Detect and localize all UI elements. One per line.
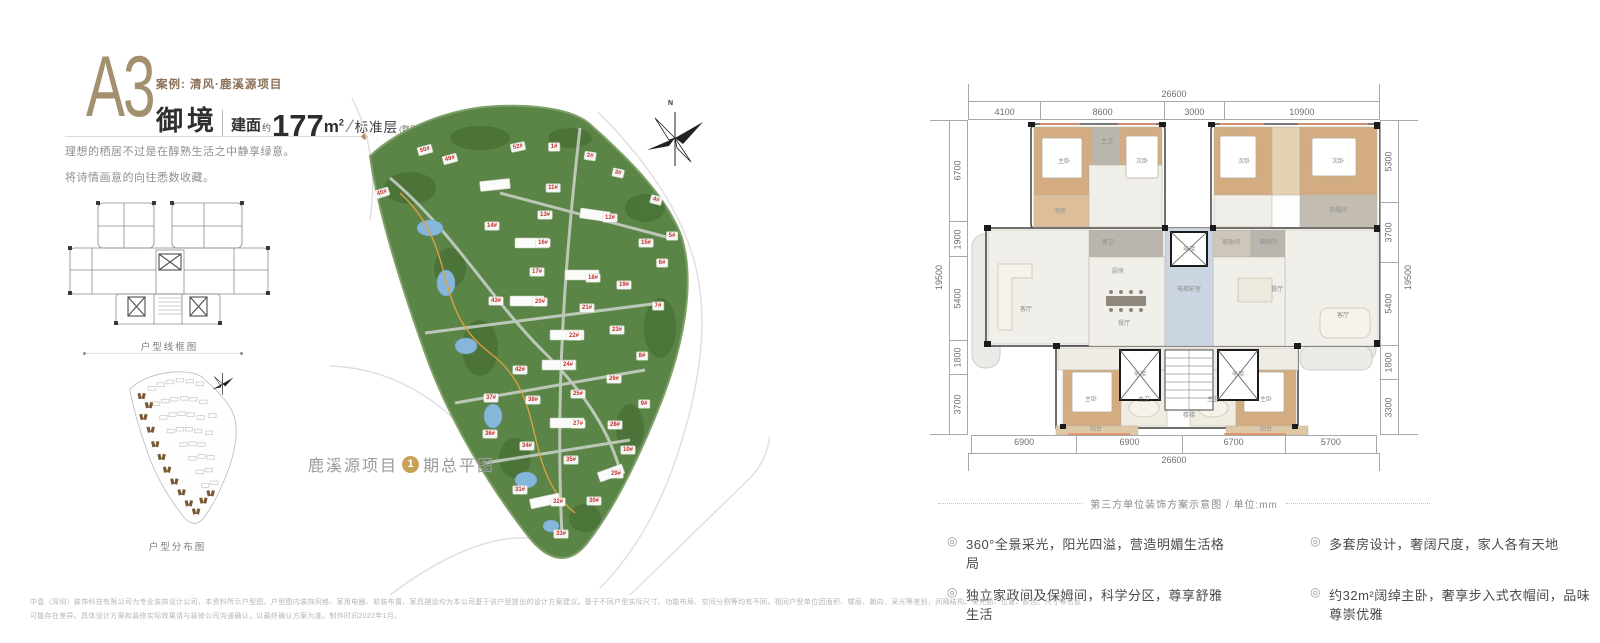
area-value: 177 xyxy=(272,113,324,138)
room-label: 客卫 xyxy=(1102,240,1114,246)
intro-text: 理想的栖居不过是在醇熟生活之中静享绿意。 将诗情画意的向往悉数收藏。 xyxy=(65,143,295,195)
building-label: 2# xyxy=(584,151,596,160)
room-label: 主卫 xyxy=(1101,139,1113,145)
unit-name: 御境 xyxy=(156,99,218,138)
building-label: 17# xyxy=(530,268,544,276)
building-label: 30# xyxy=(587,497,601,505)
area-about: 约 xyxy=(262,121,271,134)
building-labels-overlay: 52# 50# 49# 45# 1# 2# 3# 4# 5# 6# 7# xyxy=(330,98,770,595)
dim-left-total: 19500 xyxy=(930,120,950,435)
room-label: 楼梯 xyxy=(1183,413,1195,419)
building-label: 52# xyxy=(510,142,525,153)
dim-top-segments: 41008600300010900 xyxy=(968,102,1380,120)
room-label: 阳台 xyxy=(1260,427,1272,433)
brochure-page: A3 案例: 清风·鹿溪源项目 御境 建面 约 177 m2 / 标准层 (整层… xyxy=(0,0,1600,643)
unit-code: A3 xyxy=(86,50,131,126)
wireframe-diagram: 户型线框图 xyxy=(62,198,277,353)
room-label: 电梯 xyxy=(1232,372,1244,378)
building-label: 22# xyxy=(567,332,581,340)
dim-right-segments: 53003700540018003300 xyxy=(1380,120,1398,435)
building-label: 4# xyxy=(650,195,662,205)
intro-line-2: 将诗情画意的向往悉数收藏。 xyxy=(65,169,295,185)
floor-plan-drawing: 主卧 主卫 次卧 书房 客卫 厨房 家政间 保姆间 次卧 xyxy=(968,120,1380,435)
room-label: 家政间 xyxy=(1222,240,1240,246)
room-label: 厨房 xyxy=(1112,269,1124,275)
caption-leader-right xyxy=(1286,503,1430,504)
feature-bullet-icon: ◎ xyxy=(1310,534,1321,548)
room-label: 餐厅 xyxy=(1118,321,1130,327)
building-label: 9# xyxy=(639,400,650,408)
room-label: 客厅 xyxy=(1337,313,1349,319)
building-label: 25# xyxy=(571,390,585,398)
floor-plan-caption: 第三方单位装饰方案示意图 / 单位:mm xyxy=(938,496,1430,511)
building-label: 33# xyxy=(554,530,568,538)
building-label: 20# xyxy=(533,298,547,306)
building-label: 3# xyxy=(612,168,624,178)
building-label: 38# xyxy=(526,396,540,404)
room-labels-overlay: 主卧 主卫 次卧 书房 客卫 厨房 家政间 保姆间 次卧 xyxy=(968,120,1380,435)
caption-text: 第三方单位装饰方案示意图 / 单位:mm xyxy=(1082,496,1286,511)
phase-badge: 1 xyxy=(402,456,419,473)
caption-leader-left xyxy=(938,503,1082,504)
building-label: 15# xyxy=(639,239,653,247)
room-label: 客厅 xyxy=(1020,307,1032,313)
room-label: 电梯前室 xyxy=(1177,287,1201,293)
building-label: 18# xyxy=(586,274,600,282)
feature-text: 多套房设计，奢阔尺度，家人各有天地 xyxy=(1329,534,1559,553)
building-label: 6# xyxy=(657,259,668,267)
building-label: 19# xyxy=(617,281,631,289)
room-label: 阳台 xyxy=(1090,427,1102,433)
building-label: 27# xyxy=(571,420,585,428)
site-plan-caption-prefix: 鹿溪源项目 xyxy=(308,452,398,476)
building-label: 34# xyxy=(520,442,534,450)
dim-top-total: 26600 xyxy=(968,84,1380,102)
building-label: 35# xyxy=(564,456,578,464)
wireframe-caption: 户型线框图 xyxy=(62,339,277,353)
building-label: 37# xyxy=(484,394,498,402)
distribution-diagram: 户型分布图 xyxy=(90,362,265,553)
feature-text: 360°全景采光，阳光四溢，营造明媚生活格局 xyxy=(966,534,1234,572)
room-label: 衣帽间 xyxy=(1329,208,1347,214)
room-label: 次卧 xyxy=(1332,159,1344,165)
room-label: 餐厅 xyxy=(1271,287,1283,293)
room-label: 电梯 xyxy=(1134,372,1146,378)
dim-right-total: 19500 xyxy=(1398,120,1418,435)
building-label: 11# xyxy=(546,184,560,192)
header-rule xyxy=(65,136,365,137)
site-plan-caption-suffix: 期总平图 xyxy=(423,452,495,476)
building-label: 42# xyxy=(513,366,527,374)
distribution-map-svg xyxy=(90,362,265,530)
building-label: 49# xyxy=(442,153,458,164)
north-label: N xyxy=(668,100,673,107)
site-plan-caption: 鹿溪源项目 1 期总平图 xyxy=(308,452,495,476)
room-label: 主卧 xyxy=(1260,397,1272,403)
dim-left-segments: 67001900540018003700 xyxy=(950,120,968,435)
room-label: 主卫 xyxy=(1207,397,1219,403)
room-label: 书房 xyxy=(1054,209,1066,215)
building-label: 36# xyxy=(483,430,497,438)
disclaimer-line-1: 中壹（深圳）装饰科技有限公司为专业装饰设计公司，本资料所示户型图、户型图内装饰风… xyxy=(30,598,1575,607)
building-label: 16# xyxy=(536,239,550,247)
building-label: 8# xyxy=(637,352,648,360)
room-label: 主卫 xyxy=(1138,397,1150,403)
disclaimer: 中壹（深圳）装饰科技有限公司为专业装饰设计公司，本资料所示户型图、户型图内装饰风… xyxy=(30,598,1575,626)
building-label: 12# xyxy=(603,214,617,222)
building-label: 7# xyxy=(653,302,664,310)
building-label: 50# xyxy=(417,144,433,155)
building-label: 28# xyxy=(608,421,622,429)
floor-plan-block: 26600 41008600300010900 19500 6700190054… xyxy=(930,84,1418,471)
feature-item: ◎ 多套房设计，奢阔尺度，家人各有天地 xyxy=(1310,534,1600,572)
intro-line-1: 理想的栖居不过是在醇熟生活之中静享绿意。 xyxy=(65,143,295,159)
building-label: 43# xyxy=(489,297,503,305)
unit-code-wrap: A3 xyxy=(86,50,152,138)
feature-bullet-icon: ◎ xyxy=(947,534,958,548)
disclaimer-line-2: 可能存在差异。具体设计方案和装修实际效果请与装修公司沟通确认，以最终确认方案为准… xyxy=(30,612,1575,621)
building-label: 45# xyxy=(374,187,390,199)
building-label: 10# xyxy=(621,446,635,454)
separator-dotline xyxy=(84,353,242,354)
building-label: 13# xyxy=(538,211,552,219)
building-label: 21# xyxy=(580,304,594,312)
site-master-plan: 52# 50# 49# 45# 1# 2# 3# 4# 5# 6# 7# xyxy=(330,98,770,595)
room-label: 电梯 xyxy=(1183,247,1195,253)
building-label: 29# xyxy=(609,470,623,478)
building-label: 26# xyxy=(607,375,621,383)
title-divider xyxy=(222,110,223,137)
building-label: 1# xyxy=(549,143,560,151)
dim-bottom-total: 26600 xyxy=(968,453,1380,471)
building-label: 5# xyxy=(667,232,678,240)
room-label: 次卧 xyxy=(1238,159,1250,165)
room-label: 保姆间 xyxy=(1259,240,1277,246)
dim-bottom-segments: 6900690067005700 xyxy=(968,435,1380,453)
building-label: 24# xyxy=(561,361,575,369)
wireframe-floorplan-svg xyxy=(62,198,277,330)
room-label: 主卧 xyxy=(1058,159,1070,165)
building-label: 23# xyxy=(610,326,624,334)
case-label: 案例: 清风·鹿溪源项目 xyxy=(156,76,420,92)
building-label: 14# xyxy=(485,222,499,230)
room-label: 主卧 xyxy=(1085,397,1097,403)
building-label: 32# xyxy=(551,498,565,506)
room-label: 次卧 xyxy=(1136,159,1148,165)
building-label: 31# xyxy=(513,486,527,494)
distribution-caption: 户型分布图 xyxy=(90,539,265,553)
feature-item: ◎ 360°全景采光，阳光四溢，营造明媚生活格局 xyxy=(947,534,1234,572)
area-prefix: 建面 xyxy=(231,114,261,135)
